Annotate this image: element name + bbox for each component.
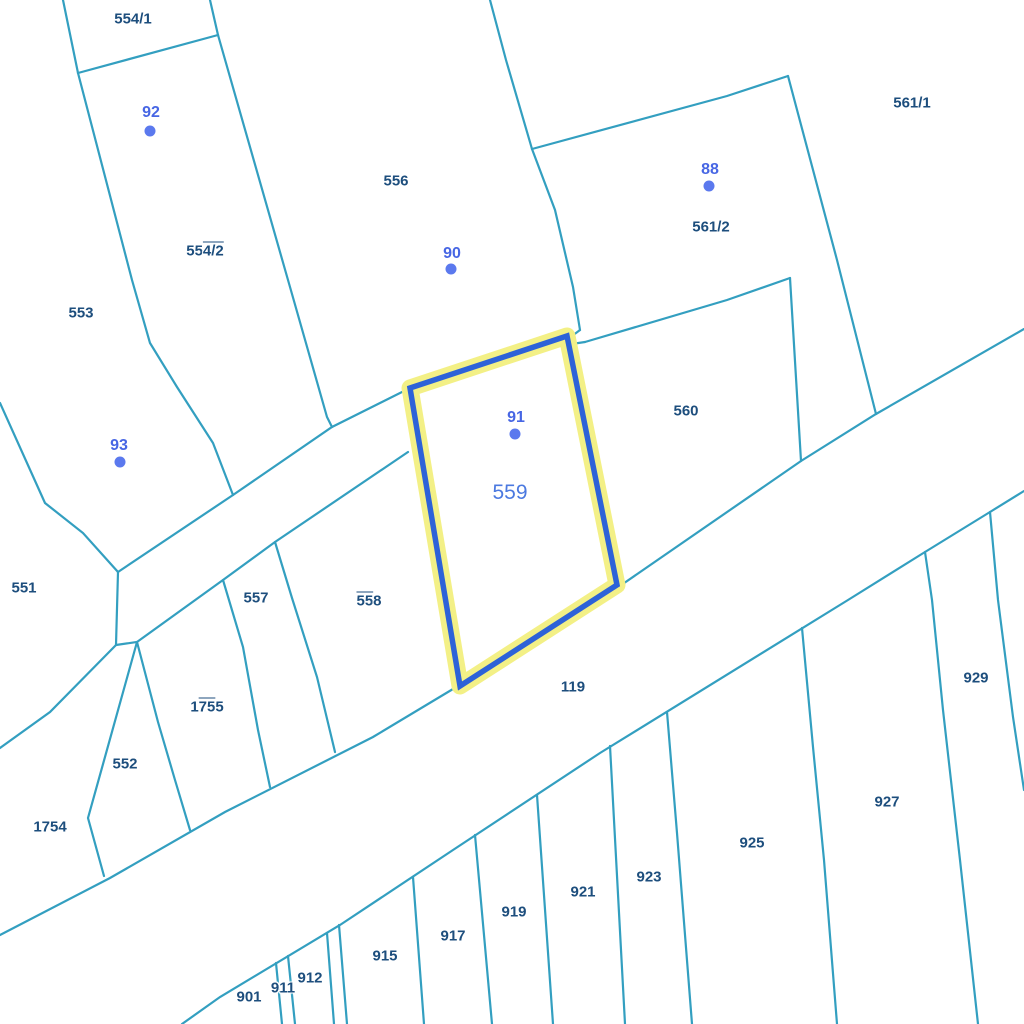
parcel-label-1755: 1755: [190, 699, 223, 716]
parcel-label-554-2: 554/2: [186, 243, 224, 260]
parcel-label-561-2: 561/2: [692, 219, 730, 236]
survey-point-label-90[interactable]: 90: [443, 245, 461, 263]
survey-point-label-92[interactable]: 92: [142, 104, 160, 122]
survey-point-label-91[interactable]: 91: [507, 409, 525, 427]
survey-point-label-93[interactable]: 93: [110, 437, 128, 455]
parcel-label-556: 556: [383, 173, 408, 190]
parcel-label-929: 929: [963, 670, 988, 687]
parcel-label-552: 552: [112, 756, 137, 773]
labels-layer: 554/1554/2553556561/1561/256055155755811…: [0, 0, 1024, 1024]
parcel-label-554-1: 554/1: [114, 11, 152, 28]
survey-point-dot-90[interactable]: [446, 264, 457, 275]
parcel-label-919: 919: [501, 904, 526, 921]
parcel-label-912: 912: [297, 970, 322, 987]
parcel-label-927: 927: [874, 794, 899, 811]
selected-parcel-label: 559: [492, 481, 527, 505]
parcel-label-557: 557: [243, 590, 268, 607]
survey-point-dot-88[interactable]: [704, 181, 715, 192]
parcel-label-911: 911: [271, 980, 295, 997]
survey-point-label-88[interactable]: 88: [701, 161, 719, 179]
parcel-label-915: 915: [372, 948, 397, 965]
parcel-label-553: 553: [68, 305, 93, 322]
parcel-label-1754: 1754: [33, 819, 66, 836]
survey-point-dot-93[interactable]: [115, 457, 126, 468]
survey-point-dot-91[interactable]: [510, 429, 521, 440]
parcel-label-119: 119: [561, 679, 585, 696]
parcel-label-921: 921: [570, 884, 595, 901]
parcel-label-917: 917: [440, 928, 465, 945]
parcel-label-925: 925: [739, 835, 764, 852]
parcel-label-901: 901: [236, 989, 261, 1006]
parcel-label-923: 923: [636, 869, 661, 886]
survey-point-dot-92[interactable]: [145, 126, 156, 137]
parcel-label-561-1: 561/1: [893, 95, 931, 112]
parcel-label-551: 551: [11, 580, 36, 597]
cadastral-map-canvas[interactable]: 554/1554/2553556561/1561/256055155755811…: [0, 0, 1024, 1024]
parcel-label-558: 558: [356, 593, 381, 610]
parcel-label-560: 560: [673, 403, 698, 420]
